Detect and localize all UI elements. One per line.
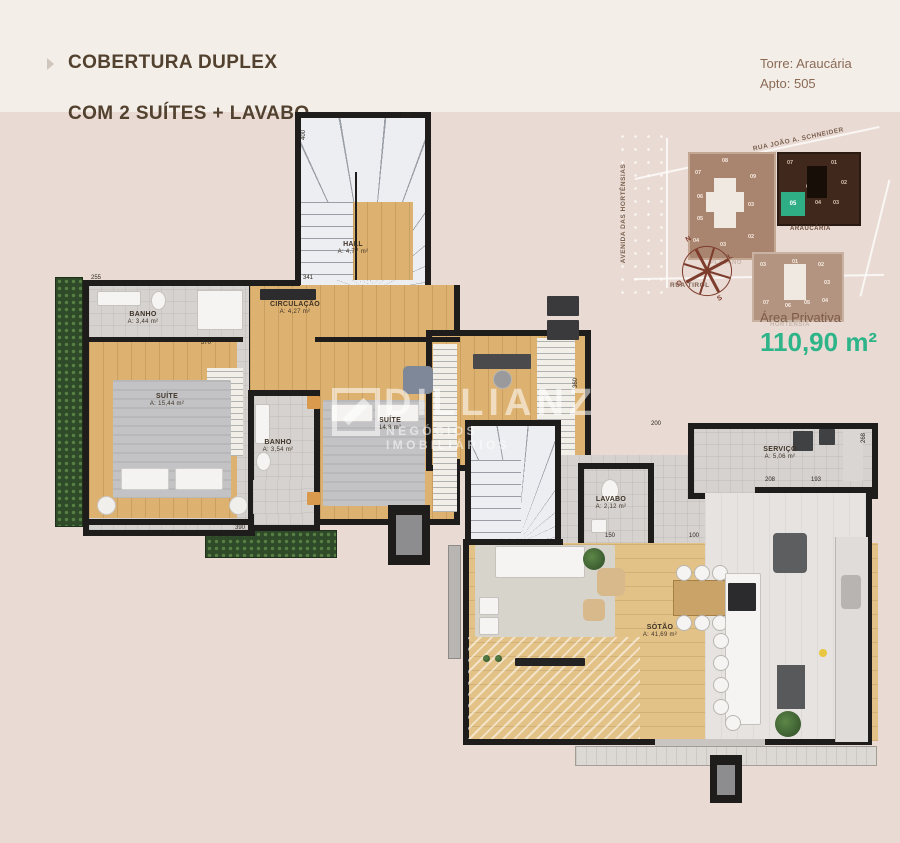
dresser [547,296,579,316]
room-area: A: 3,44 m² [113,319,173,327]
unit-number: 03 [824,280,830,286]
room-name: CIRCULAÇÃO [270,301,320,308]
dimension: 255 [91,275,101,281]
laundry-counter [843,429,863,481]
unit-number: 05 [804,300,810,306]
room-label-banho1: BANHO A: 3,44 m² [113,310,173,327]
unit-number: 03 [748,202,754,208]
unit-number: 07 [695,170,701,176]
site-location-map: RUA JOÃO A. SCHNEIDER AVENIDA DAS HORTÊN… [612,118,890,314]
room-name: BANHO [129,311,156,318]
room-area: A: 3,54 m² [248,447,308,455]
tower-label: Torre: Araucária [760,54,852,74]
room-name: SÓTÃO [647,624,673,631]
dimension: 200 [401,113,411,119]
room-label-circulacao: CIRCULAÇÃO A: 4,27 m² [250,300,340,317]
room-label-lavabo: LAVABO A: 2,12 m² [581,495,641,512]
plant-small [483,655,490,662]
dimension: 268 [861,433,867,443]
nightstand [97,496,116,515]
room-area: A: 41,69 m² [625,632,695,640]
stair-spine [355,172,357,280]
dillianz-logo-icon [332,388,380,436]
stool [725,715,741,731]
nightstand-lamp [307,396,320,409]
unit-number: 02 [841,180,847,186]
room-name: HALL [343,241,363,248]
tv-bench [260,289,316,300]
dresser [547,320,579,340]
room-label-banho2: BANHO A: 3,54 m² [248,438,308,455]
nightstand [229,496,248,515]
wall [83,337,243,342]
side-table [479,617,499,635]
dimension: 390 [235,525,245,531]
pillow [175,468,223,490]
wall [315,337,460,342]
room-area: A: 4,77 m² [323,249,383,257]
stool [713,633,729,649]
dining-chair [694,565,710,581]
unit-number: 05 [697,216,703,222]
building-araucaria-core [807,166,827,198]
room-name: SERVIÇO [763,446,796,453]
pillow [121,468,169,490]
dimension: 150 [605,533,615,539]
street-name-top: RUA JOÃO A. SCHNEIDER [752,126,844,152]
building-hortensia-core [784,264,806,300]
toilet [151,291,166,310]
vanity [97,291,141,306]
road-line-left [666,138,668,288]
plant-small [495,655,502,662]
sofa [495,546,585,578]
oven-tower [777,665,805,709]
unit-number: 02 [818,262,824,268]
duct-inner [396,515,422,555]
dimension: 370 [201,340,211,346]
laundry-item [819,429,835,445]
dimension: 341 [303,275,313,281]
room-label-servico: SERVIÇO A: 5,06 m² [745,445,815,462]
unit-number: 04 [822,298,828,304]
watermark-name: DILLIANZ [384,382,597,425]
building-platano-core2 [706,192,744,212]
accent-dot [819,649,827,657]
unit-number: 08 [722,158,728,164]
dimension: 193 [811,477,821,483]
unit-number: 01 [831,160,837,166]
unit-number: 06 [697,194,703,200]
header-accent-mark [47,58,54,70]
room-label-hall: HALL A: 4,77 m² [323,240,383,257]
unit-number: 04 [815,200,821,206]
cooktop [728,583,756,611]
private-area-label: Área Privativa [760,310,877,325]
title-line1: COBERTURA DUPLEX [68,52,277,73]
room-area: A: 5,06 m² [745,454,815,462]
unit-number: 05 [781,192,805,216]
stool [713,699,729,715]
shower [253,480,303,514]
bathtub [197,290,243,330]
wall [454,285,460,335]
wall [83,280,300,286]
desk [473,354,531,369]
street-name-left: AVENIDA DAS HORTÊNSIAS [620,164,627,263]
stool [713,655,729,671]
fridge [773,533,807,573]
building-araucaria-label: ARAUCÁRIA [790,226,831,232]
dimension: 200 [651,421,661,427]
tower-apto-info: Torre: Araucária Apto: 505 [760,54,852,94]
nightstand-lamp [307,492,320,505]
fireplace [515,658,585,666]
armchair [597,568,625,596]
room-area: A: 15,44 m² [137,401,197,409]
chair [583,599,605,621]
private-area-value: 110,90 m² [760,327,877,358]
room-label-sotao: SÓTÃO A: 41,69 m² [625,623,695,640]
watermark-tagline: NEGÓCIOS IMOBILIÁRIOS [386,424,602,452]
unit-number: 02 [748,234,754,240]
unit-number: 03 [833,200,839,206]
side-glass-panel [448,545,461,659]
room-label-suite1: SUÍTE A: 15,44 m² [137,392,197,409]
void-hatch [468,637,640,739]
duct-inner [717,765,735,795]
balcony-threshold [655,739,765,746]
room-name: LAVABO [596,496,626,503]
wall [463,739,655,745]
unit-number: 07 [763,300,769,306]
sink-small [591,519,607,533]
room-name: SUÍTE [156,393,178,400]
dimension: 100 [689,533,699,539]
lower-floor-plan: SERVIÇO A: 5,06 m² LAVABO A: 2,12 m² SÓT… [455,415,885,815]
unit-number: 09 [750,174,756,180]
compass-south: S [716,295,723,303]
floorplan-flyer: { "meta": {"background":"#e9dbd4","heade… [0,0,900,843]
plant [583,548,605,570]
stool [713,677,729,693]
dining-table [673,580,727,616]
side-table [479,597,499,615]
unit-number: 06 [785,303,791,309]
dimension: 208 [765,477,775,483]
plant [775,711,801,737]
unit-number: 07 [787,160,793,166]
sink [841,575,861,609]
dimension: 400 [301,130,307,140]
counter [835,537,868,742]
room-name: BANHO [264,439,291,446]
dining-chair [676,565,692,581]
wall [755,487,866,493]
private-area-block: Área Privativa 110,90 m² [760,310,877,358]
planter-left [55,277,83,527]
unit-number: 03 [760,262,766,268]
road-line-right [860,180,891,297]
room-area: A: 4,27 m² [250,309,340,317]
room-area: A: 2,12 m² [581,504,641,512]
dining-chair [694,615,710,631]
apto-label: Apto: 505 [760,74,852,94]
lower-stair-treads [471,460,521,538]
